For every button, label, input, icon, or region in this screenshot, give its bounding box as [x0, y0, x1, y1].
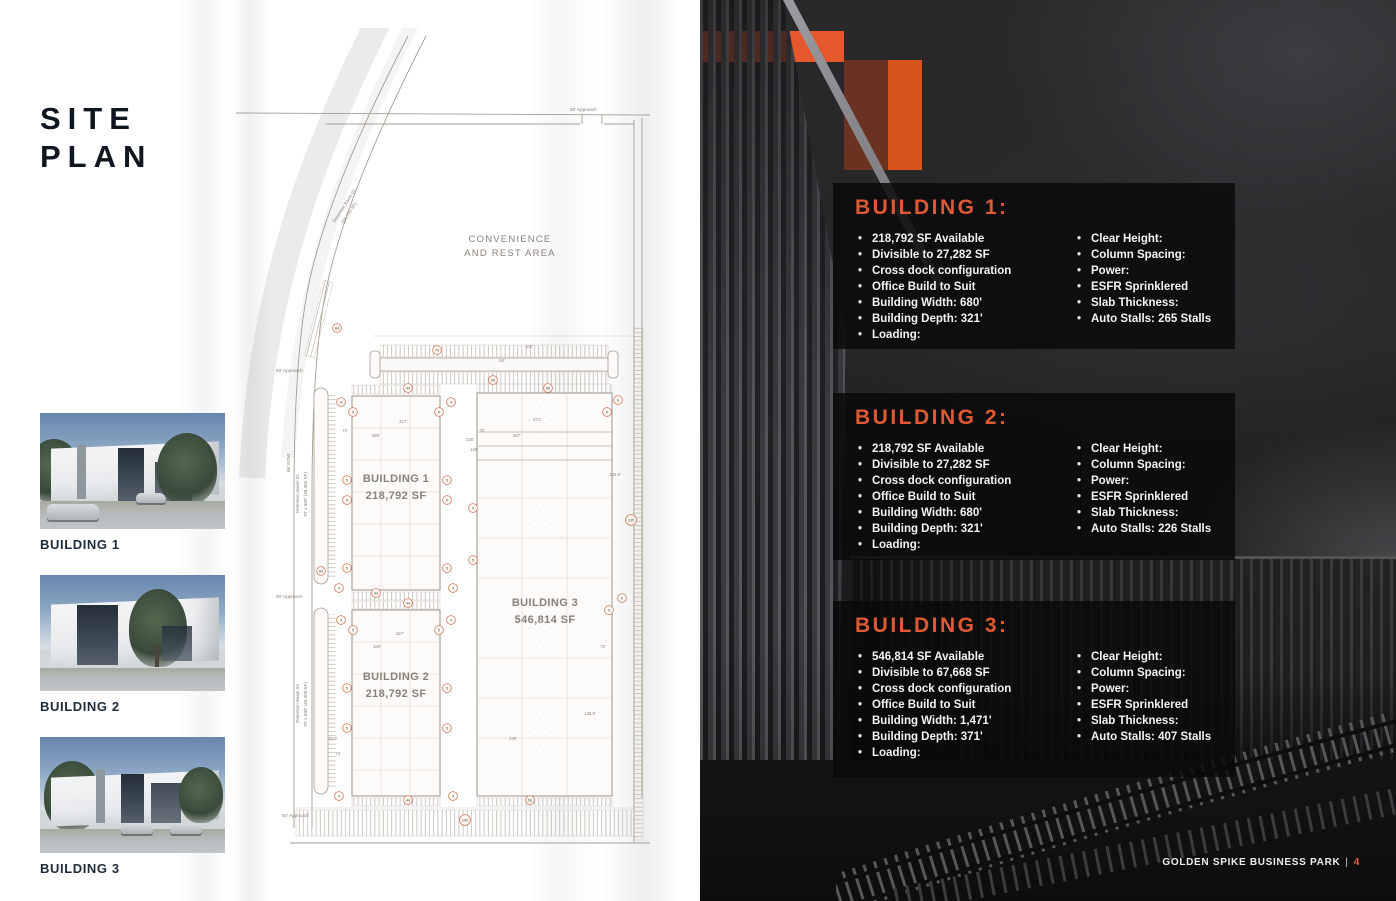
spec-item: ESFR Sprinklered [1074, 279, 1225, 295]
spec-item: Clear Height: [1074, 231, 1225, 247]
convenience-area-label-line1: CONVENIENCE [469, 234, 552, 245]
parking-count-badge-number: 56 [528, 798, 532, 802]
parking-count-badge-number: 5 [446, 686, 448, 690]
dimension-label: 327' [396, 631, 404, 636]
spec-item: Column Spacing: [1074, 457, 1225, 473]
building-2-plan-sf: 218,792 SF [366, 688, 427, 700]
building-2-spec-list-left: 218,792 SF AvailableDivisible to 27,282 … [855, 441, 1074, 553]
spec-item: Clear Height: [1074, 649, 1225, 665]
spec-item: Column Spacing: [1074, 247, 1225, 263]
parking-count-badge-number: 5 [438, 628, 440, 632]
parking-count-badge-number: 6 [617, 398, 619, 402]
dimension-label: 317' [399, 419, 407, 424]
building-1-spec-list-right: Clear Height:Column Spacing:Power:ESFR S… [1074, 231, 1225, 343]
dimension-label: 180' [373, 644, 381, 649]
building-2-render-photo [40, 575, 225, 691]
building-3-spec-list-right: Clear Height:Column Spacing:Power:ESFR S… [1074, 649, 1225, 761]
spec-item: Building Width: 680' [855, 295, 1074, 311]
dimension-label: 72' [335, 751, 341, 756]
parking-count-badge-number: 5 [608, 608, 610, 612]
spec-item: 546,814 SF Available [855, 649, 1074, 665]
dimension-label: 547' [513, 433, 521, 438]
building-3-panel-title: BUILDING 3: [855, 614, 1235, 638]
detention-basin-2-label-line2: 70' x 690' (48,300 SF) [303, 472, 308, 517]
building-1-thumbnail-label: BUILDING 1 [40, 537, 225, 552]
page-footer: GOLDEN SPIKE BUSINESS PARK|4 [1162, 857, 1360, 868]
building-1-panel-title: BUILDING 1: [855, 196, 1235, 220]
spec-item: Power: [1074, 473, 1225, 489]
parking-count-badge-number: 5 [346, 498, 348, 502]
building-3-spec-list-left: 546,814 SF AvailableDivisible to 67,668 … [855, 649, 1074, 761]
building-3-footprint [477, 393, 612, 796]
dimension-label: 371' [533, 417, 541, 422]
footer-separator: | [1345, 857, 1348, 868]
parking-count-badge-number: 6 [621, 596, 623, 600]
parking-count-badge-number: 195 [628, 518, 634, 522]
dimension-label: 100' [525, 344, 533, 349]
spec-item: 218,792 SF Available [855, 441, 1074, 457]
spec-item: Slab Thickness: [1074, 505, 1225, 521]
spec-item: ESFR Sprinklered [1074, 697, 1225, 713]
building-3-specs-panel: BUILDING 3: 546,814 SF AvailableDivisibl… [833, 601, 1235, 777]
dimension-label: 50' [499, 358, 505, 363]
convenience-area-label-line2: AND REST AREA [464, 248, 555, 259]
parking-count-badge-number: 108 [462, 818, 468, 822]
building-3-render-photo [40, 737, 225, 853]
spec-item: Loading: [855, 745, 1074, 761]
spec-item: Loading: [855, 327, 1074, 343]
building-2-thumbnail: BUILDING 2 [40, 575, 225, 714]
spec-item: Office Build to Suit [855, 489, 1074, 505]
spec-item: Building Width: 1,471' [855, 713, 1074, 729]
parking-count-badge-number: 5 [472, 506, 474, 510]
spec-item: Office Build to Suit [855, 697, 1074, 713]
parking-count-badge-number: 5 [606, 410, 608, 414]
spec-item: Divisible to 27,282 SF [855, 457, 1074, 473]
approach-label-left-2: 50' Approach [276, 594, 303, 599]
page-title: SITE PLAN [40, 100, 152, 176]
spec-item: Building Depth: 371' [855, 729, 1074, 745]
page-title-line2: PLAN [40, 138, 152, 176]
parking-count-badge-number: 5 [446, 498, 448, 502]
spec-item: Building Depth: 321' [855, 311, 1074, 327]
building-2-specs-panel: BUILDING 2: 218,792 SF AvailableDivisibl… [833, 393, 1235, 560]
building-1-plan-sf: 218,792 SF [366, 490, 427, 502]
spec-item: ESFR Sprinklered [1074, 489, 1225, 505]
approach-label-left-1: 50' Approach [276, 368, 303, 373]
parking-count-badge-number: 5 [446, 478, 448, 482]
right-page: BUILDING 1: 218,792 SF AvailableDivisibl… [700, 0, 1396, 901]
approach-label-left-3: 50' Approach [282, 813, 309, 818]
parking-count-badge-number: 5 [472, 558, 474, 562]
building-1-specs-panel: BUILDING 1: 218,792 SF AvailableDivisibl… [833, 183, 1235, 349]
building-3-plan-name: BUILDING 3 [512, 597, 578, 609]
parking-count-badge-number: 5 [346, 686, 348, 690]
spec-item: Auto Stalls: 226 Stalls [1074, 521, 1225, 537]
spec-item: Slab Thickness: [1074, 295, 1225, 311]
dimension-label: 72' [342, 428, 348, 433]
spec-item: Auto Stalls: 265 Stalls [1074, 311, 1225, 327]
parking-count-badge-number: 5 [438, 410, 440, 414]
parking-count-badge-number: 5 [446, 566, 448, 570]
dimension-label: 136.9' [584, 711, 595, 716]
spec-item: Loading: [855, 537, 1074, 553]
spec-item: Cross dock configuration [855, 681, 1074, 697]
parking-count-badge-number: 5 [446, 726, 448, 730]
orange-accent-block [888, 60, 922, 170]
site-plan-drawing: CONVENIENCE AND REST AREA 50' Approach 5… [230, 28, 700, 888]
parking-count-badge-number: 83 [319, 569, 323, 573]
spec-item: Divisible to 67,668 SF [855, 665, 1074, 681]
building-1-plan-name: BUILDING 1 [363, 473, 429, 485]
parking-count-badge-number: 5 [352, 628, 354, 632]
spec-item: Slab Thickness: [1074, 713, 1225, 729]
spec-item: Divisible to 27,282 SF [855, 247, 1074, 263]
dimension-label: 53.5' [329, 736, 338, 741]
building-thumbnails: BUILDING 1 BUILDING 2 [40, 413, 225, 899]
spec-item: Office Build to Suit [855, 279, 1074, 295]
building-2-plan-name: BUILDING 2 [363, 671, 429, 683]
building-1-thumbnail: BUILDING 1 [40, 413, 225, 552]
detention-basin-3-label-line2: 70' x 690' (48,300 SF) [303, 682, 308, 727]
footer-brand: GOLDEN SPIKE BUSINESS PARK [1162, 857, 1340, 868]
parking-count-badge-number: 5 [346, 566, 348, 570]
dimension-label: 72' [600, 644, 606, 649]
building-3-thumbnail: BUILDING 3 [40, 737, 225, 876]
dimension-label: 230' [509, 736, 517, 741]
building-3-plan-sf: 546,814 SF [515, 614, 576, 626]
spec-item: Power: [1074, 263, 1225, 279]
parking-count-badge-number: 5 [346, 478, 348, 482]
building-2-spec-list-right: Clear Height:Column Spacing:Power:ESFR S… [1074, 441, 1225, 553]
spec-item: Column Spacing: [1074, 665, 1225, 681]
dimension-label: 680' [372, 433, 380, 438]
spec-item: 218,792 SF Available [855, 231, 1074, 247]
detention-basin-2-label-line1: Detention Basin 02 [295, 474, 300, 513]
spec-item: Cross dock configuration [855, 263, 1074, 279]
building-2-footprint [352, 610, 440, 796]
building-2-panel-title: BUILDING 2: [855, 406, 1235, 430]
spec-item: Clear Height: [1074, 441, 1225, 457]
row-label: 66' ROW [286, 453, 291, 472]
detention-basin-3-label-line1: Detention Basin 03 [295, 684, 300, 723]
left-page: SITE PLAN BUILDING 1 [0, 0, 700, 901]
building-2-thumbnail-label: BUILDING 2 [40, 699, 225, 714]
approach-label-top: 50' Approach [570, 107, 597, 112]
parking-count-badge-number: 5 [352, 410, 354, 414]
spec-item: Auto Stalls: 407 Stalls [1074, 729, 1225, 745]
spec-item: Building Depth: 321' [855, 521, 1074, 537]
dimension-label: 76' [479, 428, 485, 433]
page-title-line1: SITE [40, 100, 152, 138]
brochure-page: SITE PLAN BUILDING 1 [0, 0, 1396, 901]
spec-item: Building Width: 680' [855, 505, 1074, 521]
spec-item: Cross dock configuration [855, 473, 1074, 489]
parking-count-badge-number: 58 [546, 386, 550, 390]
dimension-label: 183.9' [609, 472, 620, 477]
spec-item: Power: [1074, 681, 1225, 697]
dimension-label: 230' [466, 437, 474, 442]
building-3-thumbnail-label: BUILDING 3 [40, 861, 225, 876]
building-1-spec-list-left: 218,792 SF AvailableDivisible to 27,282 … [855, 231, 1074, 343]
footer-page-number: 4 [1354, 857, 1360, 868]
detention-basins [314, 388, 336, 794]
parking-count-badge-number: 95 [491, 378, 495, 382]
parking-count-badge-number: 75 [435, 348, 439, 352]
building-1-render-photo [40, 413, 225, 529]
dimension-label: 148' [470, 447, 478, 452]
parking-count-badge-number: 5 [346, 726, 348, 730]
